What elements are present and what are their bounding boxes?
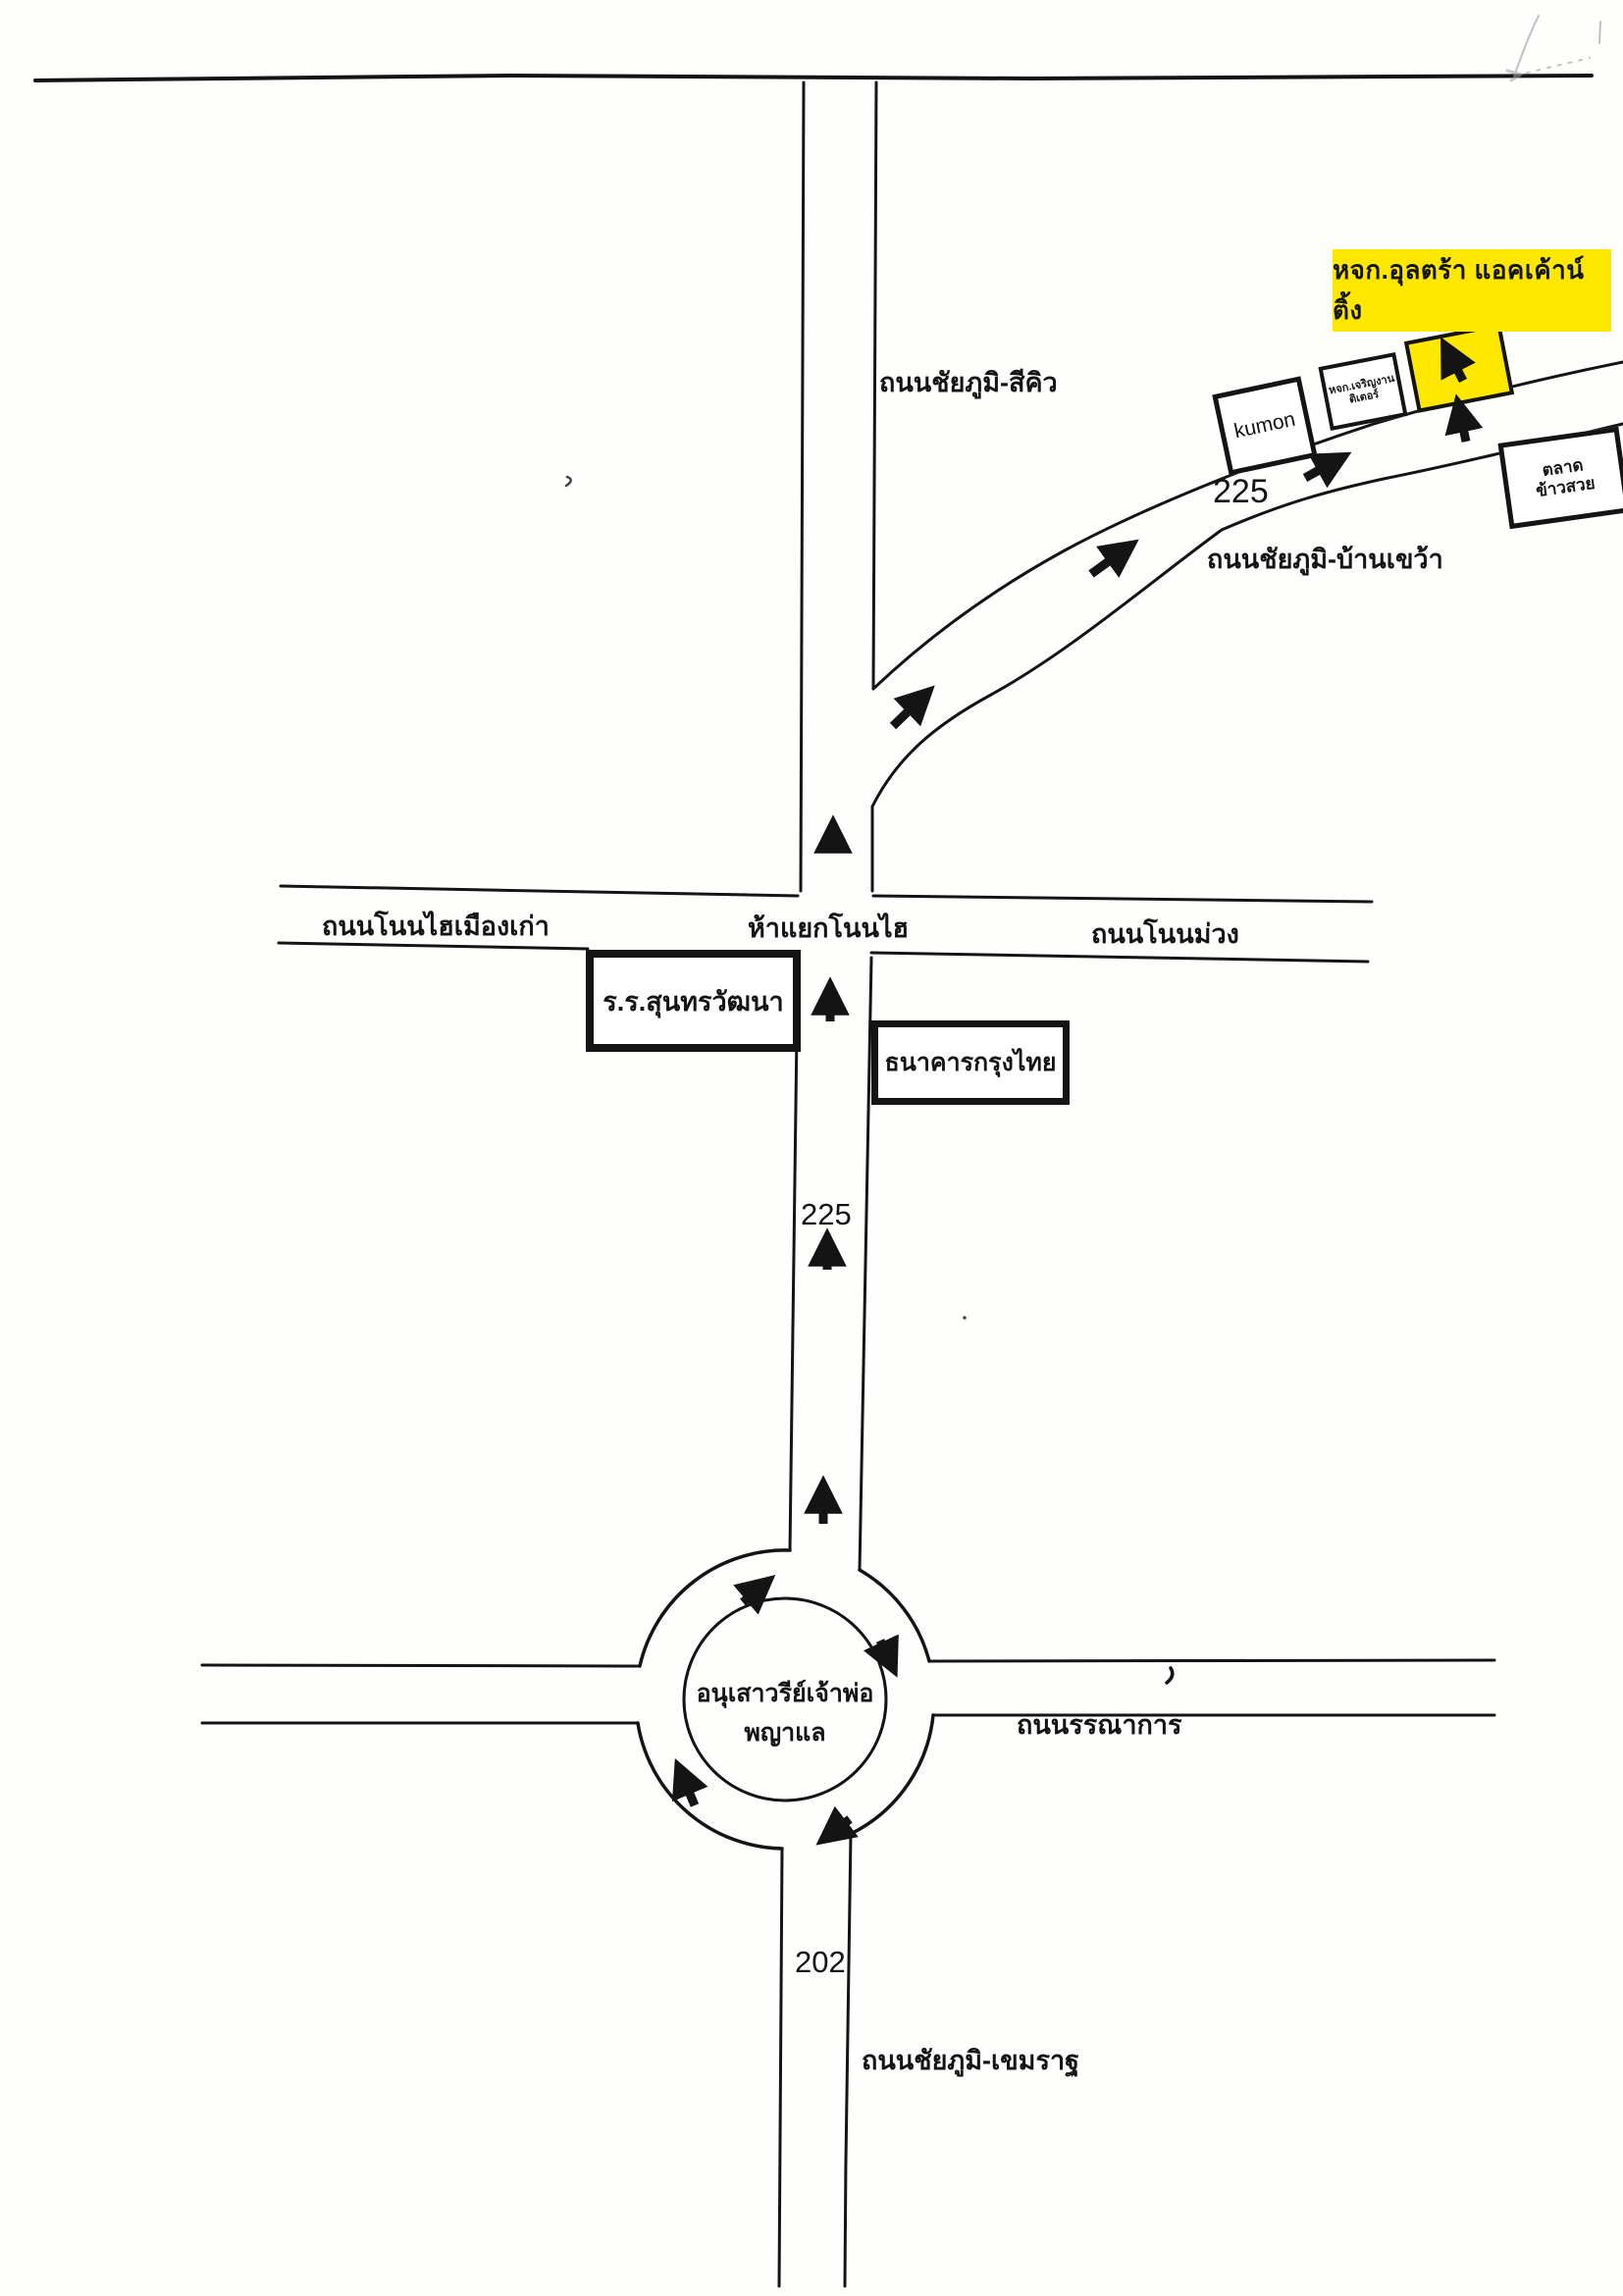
pencil-scribble [1507,16,1600,80]
direction-arrow-curve-mid [1091,546,1130,574]
direction-arrow-roundabout-east [880,1641,893,1668]
road-label-nonhai-muangkao: ถนนโนนไฮเมืองเก่า [322,905,550,947]
route-number-225-lower: 225 [801,1197,852,1232]
road-horizontal-upper-right [873,896,1372,902]
market-building: ตลาด ข้าวสวย [1497,427,1623,529]
scan-specks [566,477,1173,1683]
road-vertical-upper-right [873,82,876,689]
road-vertical-upper-left [801,82,804,891]
destination-title-banner: หจก.อุลตร้า แอคเค้าน์ติ้ง [1333,249,1611,332]
route-number-225-upper: 225 [1213,473,1269,511]
junction-label-nonhai: ห้าแยกโนนไฮ [748,907,909,949]
bank-label: ธนาคารกรุงไทย [884,1043,1056,1082]
road-label-bannakan: ถนนรรณาการ [1017,1703,1182,1746]
route-number-202: 202 [795,1945,846,1980]
direction-arrow-into-destination [1458,404,1466,442]
road-label-chaiyaphum-sikhio: ถนนชัยภูมิ-สีคิว [879,361,1058,403]
direction-arrow-curve-upper [1305,457,1342,478]
direction-arrow-roundabout-sw [679,1768,695,1805]
school-label: ร.ร.สุนทรวัฒนา [602,980,783,1022]
road-vertical-mid-right [860,958,871,1570]
road-label-chaiyaphum-khemarat: ถนนชัยภูมิ-เขมราฐ [862,2039,1079,2081]
school-building: ร.ร.สุนทรวัฒนา [586,950,801,1052]
direction-arrow-fork [893,693,927,726]
road-label-nonmuang: ถนนโนนม่วง [1091,913,1239,955]
road-label-chaiyaphum-bankhwao: ถนนชัยภูมิ-บ้านเขว้า [1207,538,1443,580]
map-canvas: kumon หจก.เจริญงาน ติเตอร์ ตลาด ข้าวสวย … [0,0,1623,2296]
destination-title-label: หจก.อุลตร้า แอคเค้าน์ติ้ง [1333,250,1611,331]
direction-arrow-roundabout-nw [743,1582,767,1602]
road-vertical-bottom-right [845,1834,851,2286]
charoen-shop-building: หจก.เจริญงาน ติเตอร์ [1318,352,1407,431]
destination-building [1404,323,1514,413]
road-horizontal-upper-left [281,886,798,896]
kumon-label: kumon [1232,408,1298,444]
page-border-top [35,76,1592,80]
monument-label-line1: อนุเสาวรีย์เจ้าพ่อ [697,1680,874,1707]
road-roundabout-left-upper [202,1665,640,1666]
kumon-building: kumon [1212,376,1317,475]
direction-arrow-roundabout-south [824,1819,850,1839]
road-roundabout-right-upper [929,1660,1494,1661]
bank-building: ธนาคารกรุงไทย [871,1020,1070,1105]
road-vertical-bottom-left [779,1849,782,2286]
monument-label: อนุเสาวรีย์เจ้าพ่อ พญาแล [667,1674,903,1752]
monument-label-line2: พญาแล [744,1719,825,1747]
